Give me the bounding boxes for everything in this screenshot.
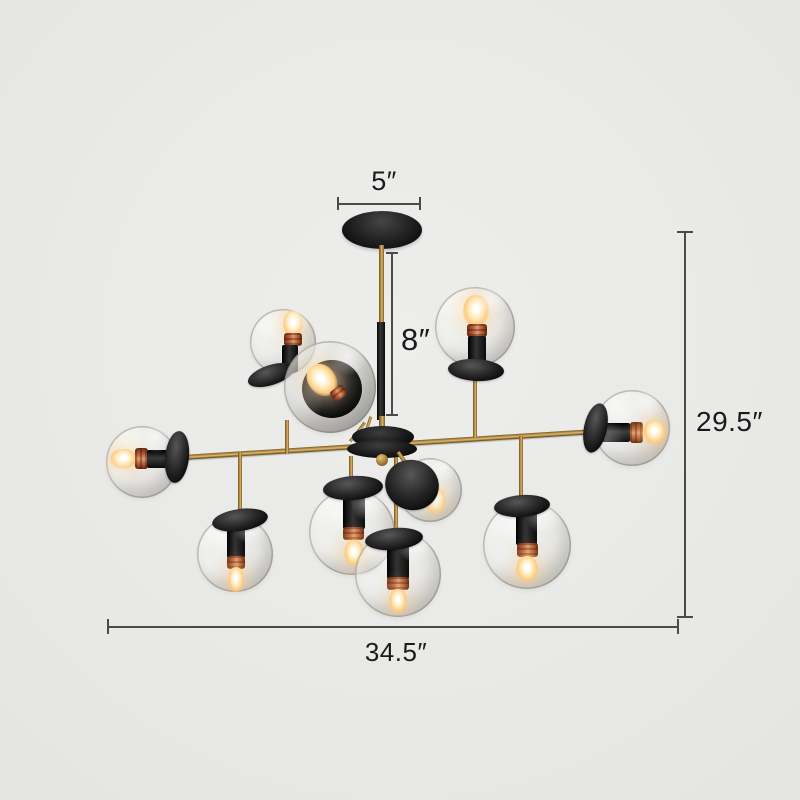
- bulb-glow: [228, 567, 244, 592]
- copper-band: [343, 527, 364, 540]
- bulb-glow: [463, 295, 489, 327]
- ceiling-canopy: [342, 211, 422, 249]
- tick-left-overall-width: [107, 619, 109, 634]
- dimension-line-overall-height: [684, 232, 686, 618]
- hanging-rod-brass-upper: [379, 245, 384, 325]
- tick-bottom-overall-height: [677, 616, 693, 618]
- metal-shade: [447, 358, 504, 383]
- bulb-glow: [389, 589, 407, 613]
- dimension-line-rod-drop: [391, 253, 393, 416]
- copper-band: [630, 422, 643, 443]
- hanging-rod-black-sleeve: [377, 322, 385, 420]
- dimension-label-rod-drop: 8″: [401, 322, 430, 358]
- tick-top-rod-drop: [386, 252, 398, 254]
- hub-finial: [376, 454, 388, 466]
- bulb-glow: [516, 556, 538, 582]
- dimension-line-canopy-width: [338, 203, 420, 205]
- stem-upper-left-globe: [285, 420, 289, 454]
- product-image: 5″ 8″ 29.5″ 34.5″: [0, 0, 800, 800]
- tick-right-canopy-width: [419, 197, 421, 210]
- dimension-label-canopy-width: 5″: [354, 166, 414, 197]
- tick-bottom-rod-drop: [386, 414, 398, 416]
- tick-left-canopy-width: [337, 197, 339, 210]
- glass-globe-smoky: [284, 341, 376, 433]
- dimension-label-overall-height: 29.5″: [696, 406, 763, 438]
- bulb-glow: [110, 449, 137, 469]
- dimension-label-overall-width: 34.5″: [346, 637, 446, 668]
- dimension-line-overall-width: [108, 626, 678, 628]
- tick-right-overall-width: [677, 619, 679, 634]
- tick-top-overall-height: [677, 231, 693, 233]
- glass-globe: [435, 287, 515, 367]
- copper-band: [517, 543, 538, 557]
- stem-top-right-globe: [473, 378, 477, 438]
- bulb-glow: [643, 420, 666, 444]
